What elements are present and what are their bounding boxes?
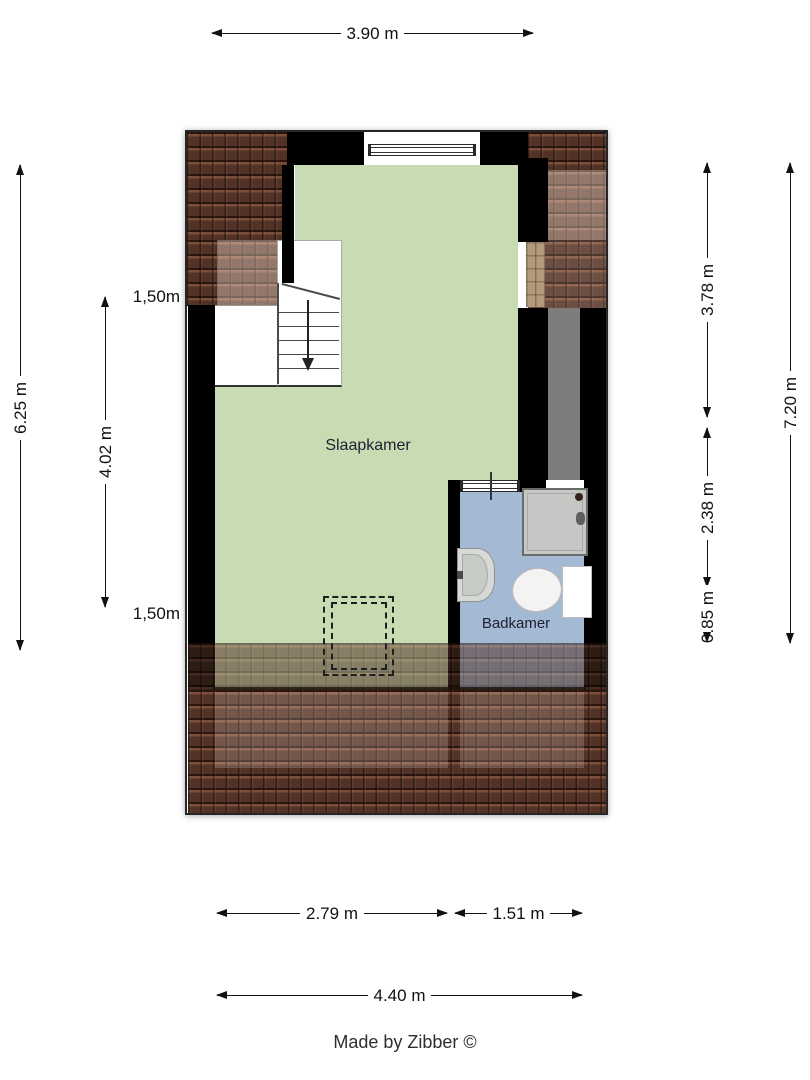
roof-tiles-top-left-lower	[187, 240, 217, 306]
dimension-label: 0.85 m	[698, 585, 718, 649]
stairs-down-arrow-shaft	[307, 300, 309, 358]
bedroom-right-wall-mid	[518, 308, 548, 480]
dimension-label: 2.79 m	[300, 904, 364, 924]
roof-overlay-over-rooms	[188, 643, 606, 690]
dimension-left-inner: 4.02 m	[105, 297, 106, 607]
duct-chimney	[548, 308, 580, 480]
shower-inner-tray	[527, 493, 583, 551]
dimension-bottom-total: 4.40 m	[217, 995, 582, 996]
roof-tiles-top-left	[187, 132, 287, 240]
dimension-label: 7.20 m	[781, 371, 801, 435]
dimension-bottom-left-part: 2.79 m	[217, 913, 447, 914]
right-wall-tan-strip	[526, 242, 545, 307]
dimension-label: 2.38 m	[698, 476, 718, 540]
top-window-glazing	[368, 144, 476, 156]
dimension-bottom-right-part: 1.51 m	[455, 913, 582, 914]
dimension-label: 6.25 m	[11, 376, 31, 440]
dimension-label: 4.02 m	[96, 420, 116, 484]
stairs-side-wall	[282, 165, 294, 283]
roof-bottom-haze-right	[460, 692, 584, 768]
dimension-right-lower: 2.38 m	[707, 428, 708, 587]
dimension-right-total: 7.20 m	[790, 163, 791, 643]
height-marker-bottom: 1,50m	[108, 604, 180, 624]
dimension-label: 3.78 m	[698, 258, 718, 322]
dimension-right-upper: 3.78 m	[707, 163, 708, 417]
bathroom-door-leaf-line	[490, 472, 492, 500]
sink-basin	[462, 554, 488, 596]
dimension-label: 1.51 m	[487, 904, 551, 924]
shower-head-icon	[576, 512, 585, 525]
skylight-outline-inner	[331, 602, 387, 670]
stairs-down-arrow-icon	[302, 358, 314, 371]
dimension-label: 4.40 m	[368, 986, 432, 1006]
height-marker-top: 1,50m	[108, 287, 180, 307]
dimension-label: 3.90 m	[341, 24, 405, 44]
top-wall-left-segment	[287, 132, 364, 165]
sink	[457, 548, 495, 602]
shower-drain-icon	[575, 493, 583, 501]
outer-left-wall	[188, 305, 215, 690]
toilet-tank	[562, 566, 592, 618]
credit-text: Made by Zibber ©	[0, 1032, 810, 1053]
outer-right-wall-mid	[580, 308, 606, 480]
floor-plan	[185, 130, 608, 815]
bedroom-right-wall-upper	[518, 158, 548, 242]
sink-tap-icon	[457, 571, 463, 579]
dimension-left-outer: 6.25 m	[20, 165, 21, 650]
room-label-slaapkamer: Slaapkamer	[288, 437, 448, 455]
shower	[522, 488, 588, 556]
dimension-top-width: 3.90 m	[212, 33, 533, 34]
roof-bottom-haze-left	[215, 692, 448, 768]
stairs-closet	[213, 305, 279, 387]
room-label-badkamer: Badkamer	[456, 615, 576, 632]
dimension-right-eave: 0.85 m	[707, 591, 708, 642]
